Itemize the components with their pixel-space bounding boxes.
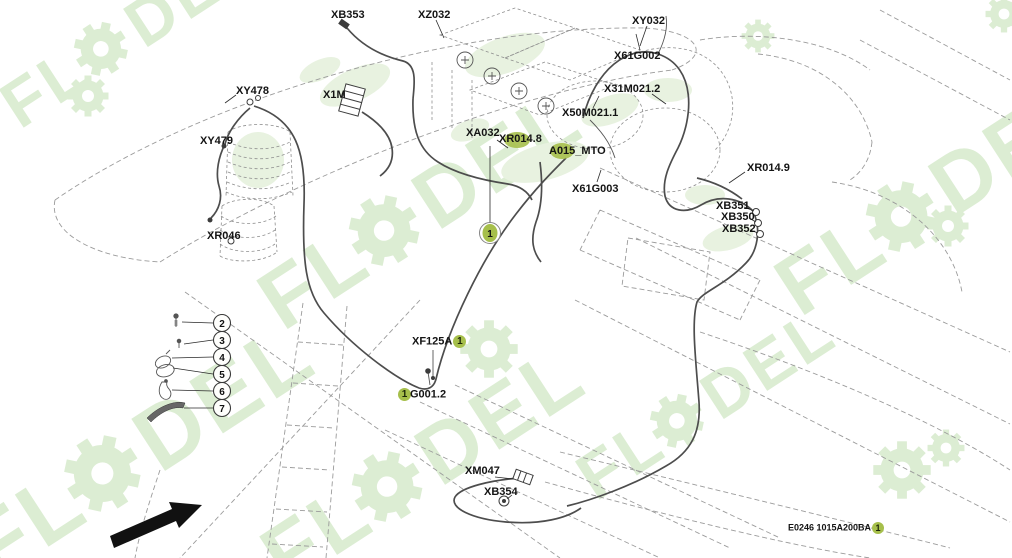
footer-drawing-code: E0246 1015A200BA1 [788,522,884,534]
label-xm047: XM047 [465,465,500,478]
svg-text:2: 2 [219,319,225,330]
label-x31m021-2: X31M021.2 [604,83,660,96]
label-x61g002: X61G002 [614,50,660,63]
label-1g001-2: 1G001.2 [398,388,446,401]
gear-icon [986,0,1012,32]
watermark-text: DEL [111,0,272,61]
footer-code-text: E0246 1015A200BA [788,522,871,532]
watermark-text: DEL [913,56,1012,233]
connector-xy479 [208,218,213,223]
label-xr014-8[interactable]: XR014.8 [499,133,542,146]
label-xf125a: XF125A1 [412,335,466,348]
connector-xb352 [757,231,764,238]
bolt-icon [174,314,178,327]
gear-icon [928,206,969,247]
parts-diagram-canvas: FL DEL FL DEL FL DEL FL DEL FL DEL FL DE… [0,0,1012,558]
svg-text:4: 4 [219,353,225,364]
label-xr046: XR046 [207,230,241,243]
label-xz032: XZ032 [418,9,450,22]
gear-icon [928,430,965,467]
gear-icon [742,20,775,53]
orientation-arrow [110,502,202,548]
gear-icon [68,76,109,117]
connector-1g001 [425,368,431,374]
label-x1m: X1M [323,89,346,102]
label-xy032: XY032 [632,15,665,28]
callout-1-number: 1 [487,229,493,240]
label-xf125a-text: XF125A [412,335,452,347]
connector-xf125a [431,376,435,380]
svg-text:7: 7 [219,404,225,415]
label-a015-mto[interactable]: A015_MTO [549,145,606,158]
label-x50m021-1: X50M021.1 [562,107,618,120]
callout-6[interactable]: 6 [214,383,231,400]
watermark-layer: FL DEL FL DEL FL DEL FL DEL FL DEL FL DE… [0,0,1012,558]
diagram-artwork: FL DEL FL DEL FL DEL FL DEL FL DEL FL DE… [0,0,1012,558]
svg-text:6: 6 [219,387,225,398]
label-xy478: XY478 [236,85,269,98]
callout-3[interactable]: 3 [214,332,231,349]
label-xa032: XA032 [466,127,500,140]
label-xb353: XB353 [331,9,365,22]
screw-icon [177,339,181,348]
callout-1[interactable]: 1 [480,223,501,244]
callout-4[interactable]: 4 [214,349,231,366]
xf125a-ref-link[interactable]: 1 [453,335,466,348]
label-g001-text: G001.2 [410,388,446,400]
label-x61g003: X61G003 [572,183,618,196]
label-xr014-9: XR014.9 [747,162,790,175]
callout-7[interactable]: 7 [214,400,231,417]
label-xb354: XB354 [484,486,518,499]
callout-2[interactable]: 2 [214,315,231,332]
label-xy479: XY479 [200,135,233,148]
svg-text:5: 5 [219,370,225,381]
connector-xy478 [247,99,253,105]
label-xb352: XB352 [722,223,756,236]
footer-ref-link[interactable]: 1 [872,522,884,534]
connector-xm047 [513,469,533,485]
callout-5[interactable]: 5 [214,366,231,383]
svg-text:3: 3 [219,336,225,347]
gear-icon [873,441,930,498]
gear-icon [460,320,517,377]
